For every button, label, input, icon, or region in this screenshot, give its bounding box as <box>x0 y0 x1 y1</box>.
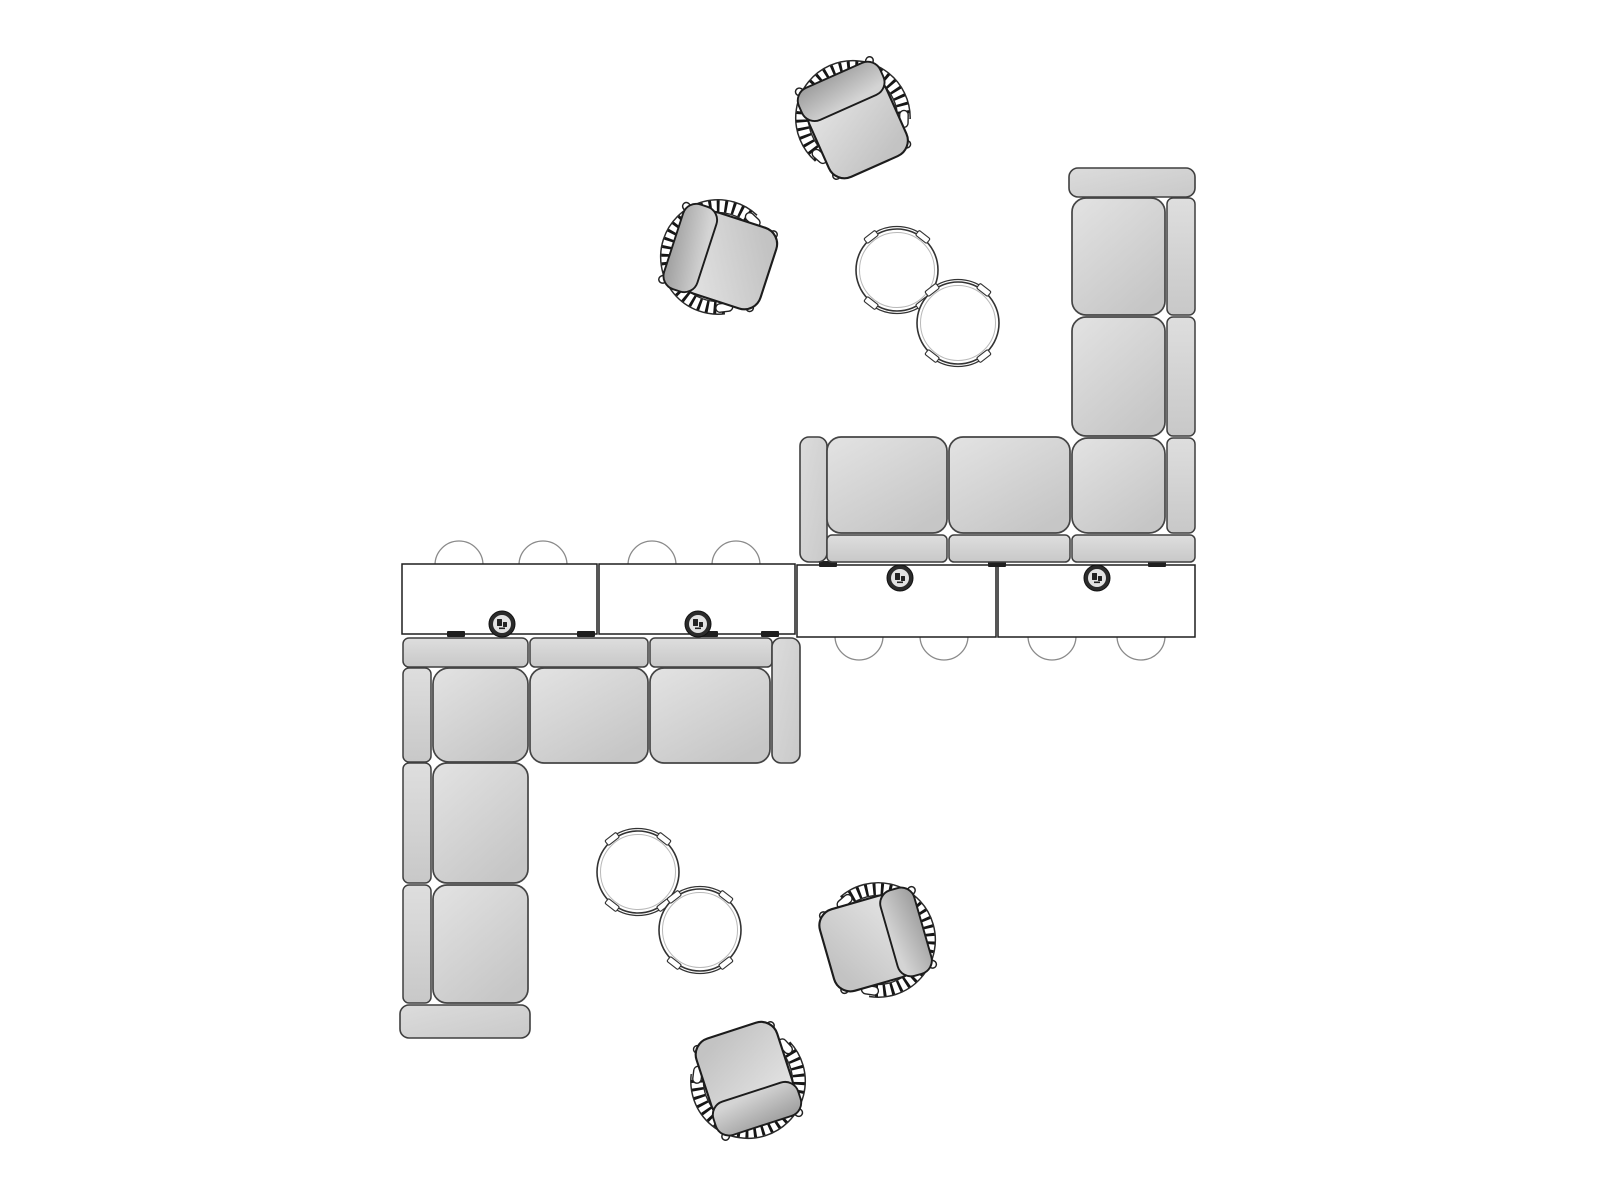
sofa-backrest <box>650 638 772 667</box>
grommet-glyph <box>1092 573 1097 580</box>
round-side-table <box>659 886 741 973</box>
sofa-cushion <box>1072 438 1165 533</box>
grommet-glyph <box>1098 576 1102 581</box>
sofa-cushion <box>433 885 528 1003</box>
scene <box>400 42 1195 1153</box>
mounting-clip <box>447 631 465 637</box>
sofa-cushion <box>650 668 770 763</box>
sofa-cushion <box>949 437 1070 533</box>
round-side-table <box>917 279 999 366</box>
sofa-armrest <box>400 1005 530 1038</box>
power-grommet <box>887 565 913 591</box>
grommet-glyph <box>499 628 505 630</box>
sofa-backrest <box>1072 535 1195 562</box>
grommet-glyph <box>695 628 701 630</box>
sofa-backrest <box>403 763 431 883</box>
sofa-backrest <box>1167 317 1195 436</box>
power-grommet <box>1084 565 1110 591</box>
grommet-glyph <box>503 622 507 627</box>
mounting-clip <box>761 631 779 637</box>
grommet-glyph <box>1094 582 1100 584</box>
sofa-cushion <box>827 437 947 533</box>
round-side-table <box>597 828 679 915</box>
furniture-plan-svg <box>0 0 1600 1200</box>
lounge-chair <box>646 185 786 328</box>
lounge-chair <box>777 42 926 189</box>
grommet-glyph <box>901 576 905 581</box>
sofa-armrest <box>772 638 800 763</box>
lounge-chair <box>677 1013 820 1153</box>
floor-plan <box>0 0 1600 1200</box>
grommet-glyph <box>693 619 698 626</box>
grommet-glyph <box>895 573 900 580</box>
mounting-clip <box>577 631 595 637</box>
sofa-cushion <box>433 763 528 883</box>
sofa-backrest <box>1167 438 1195 533</box>
grommet-glyph <box>699 622 703 627</box>
sofa-cushion <box>530 668 648 763</box>
sofa-armrest <box>800 437 827 562</box>
sofa-backrest <box>403 668 431 762</box>
power-grommet <box>685 611 711 637</box>
sofa-backrest <box>403 885 431 1003</box>
sofa-cushion <box>433 668 528 762</box>
grommet-glyph <box>897 582 903 584</box>
sofa-cushion <box>1072 198 1165 315</box>
sofa-backrest <box>949 535 1070 562</box>
sofa-backrest <box>827 535 947 562</box>
sofa-backrest <box>530 638 648 667</box>
sofa-cushion <box>1072 317 1165 436</box>
power-grommet <box>489 611 515 637</box>
lounge-chair <box>811 869 949 1009</box>
sofa-backrest <box>1167 198 1195 315</box>
grommet-glyph <box>497 619 502 626</box>
sofa-backrest <box>403 638 528 667</box>
sofa-armrest <box>1069 168 1195 197</box>
